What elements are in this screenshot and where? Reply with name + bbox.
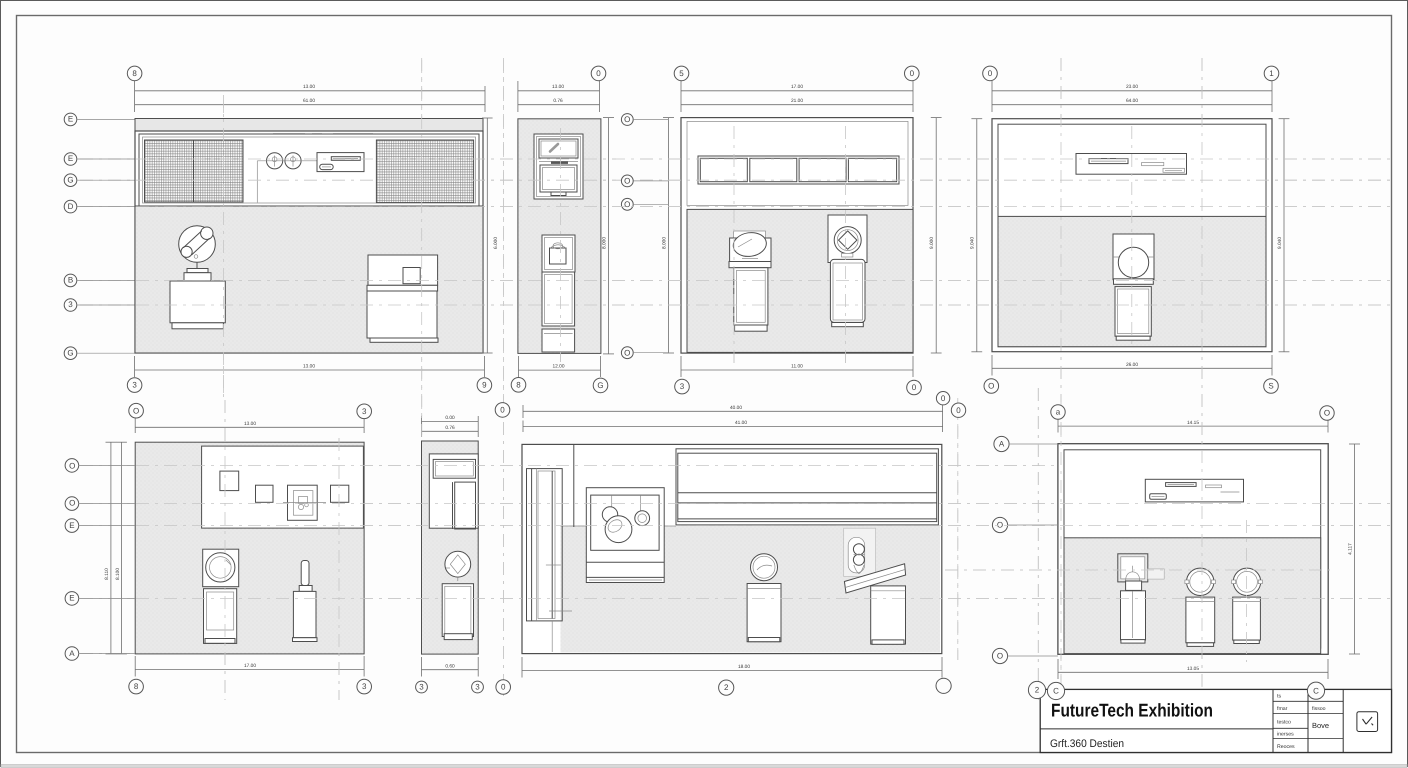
svg-text:0: 0: [500, 406, 505, 415]
svg-text:3: 3: [362, 407, 367, 416]
svg-text:6.000: 6.000: [493, 237, 499, 249]
svg-text:ts: ts: [1277, 694, 1281, 700]
svg-text:G: G: [597, 381, 603, 390]
svg-text:13.00: 13.00: [244, 421, 256, 427]
svg-text:G: G: [67, 175, 73, 184]
svg-text:FutureTech Exhibition: FutureTech Exhibition: [1051, 700, 1213, 721]
svg-text:9.040: 9.040: [970, 237, 976, 249]
svg-text:3: 3: [475, 683, 480, 692]
svg-text:64.00: 64.00: [1126, 98, 1138, 104]
svg-text:O: O: [624, 200, 630, 209]
svg-text:8: 8: [132, 69, 137, 78]
svg-text:O: O: [997, 652, 1003, 661]
svg-text:0: 0: [501, 683, 506, 692]
svg-text:A: A: [999, 440, 1005, 449]
svg-text:O: O: [988, 382, 994, 391]
svg-text:0: 0: [988, 69, 993, 78]
svg-text:12.00: 12.00: [552, 364, 564, 370]
svg-text:0: 0: [596, 69, 601, 78]
svg-text:E: E: [68, 154, 73, 163]
svg-text:61.00: 61.00: [303, 98, 315, 104]
svg-text:2: 2: [724, 683, 729, 692]
svg-text:3: 3: [680, 382, 685, 391]
svg-text:13.00: 13.00: [303, 364, 315, 370]
svg-text:9.040: 9.040: [1277, 237, 1283, 249]
svg-text:13.00: 13.00: [552, 84, 564, 90]
svg-text:5: 5: [679, 69, 684, 78]
svg-text:13.05: 13.05: [1187, 666, 1199, 672]
svg-text:O: O: [133, 406, 139, 415]
svg-text:18.00: 18.00: [738, 664, 750, 670]
svg-text:C: C: [1053, 687, 1059, 696]
svg-text:O: O: [997, 521, 1003, 530]
svg-text:0.60: 0.60: [445, 663, 455, 669]
svg-text:3: 3: [362, 682, 367, 691]
svg-text:0: 0: [912, 383, 917, 392]
svg-text:3: 3: [132, 381, 137, 390]
svg-text:41.00: 41.00: [735, 420, 747, 426]
svg-text:4.117: 4.117: [1348, 543, 1354, 555]
svg-text:E: E: [69, 521, 74, 530]
svg-text:8: 8: [516, 380, 521, 389]
svg-text:0: 0: [941, 394, 946, 403]
svg-text:17.00: 17.00: [244, 663, 256, 669]
svg-text:0.76: 0.76: [445, 425, 455, 431]
svg-text:A: A: [69, 649, 75, 658]
svg-text:G: G: [67, 348, 73, 357]
svg-text:8.110: 8.110: [104, 568, 110, 580]
svg-text:0: 0: [956, 406, 961, 415]
svg-text:8.100: 8.100: [115, 568, 121, 580]
svg-text:E: E: [68, 115, 73, 124]
svg-text:Grft.360 Destien: Grft.360 Destien: [1050, 738, 1124, 750]
svg-text:inerses: inerses: [1277, 732, 1294, 738]
svg-text:14.15: 14.15: [1187, 420, 1199, 426]
svg-text:11.00: 11.00: [791, 364, 803, 370]
svg-text:8: 8: [134, 682, 139, 691]
svg-text:17.00: 17.00: [791, 84, 803, 90]
svg-text:1: 1: [1269, 69, 1274, 78]
svg-text:13.00: 13.00: [303, 84, 315, 90]
svg-text:2: 2: [1035, 686, 1040, 695]
svg-text:9: 9: [482, 381, 487, 390]
svg-text:O: O: [1324, 409, 1330, 418]
svg-text:8.000: 8.000: [602, 237, 608, 249]
svg-text:O: O: [69, 498, 75, 507]
svg-text:Bove: Bove: [1312, 721, 1329, 730]
svg-text:3: 3: [68, 300, 73, 309]
svg-text:D: D: [68, 202, 74, 211]
svg-text:O: O: [69, 461, 75, 470]
svg-text:9.000: 9.000: [929, 237, 935, 249]
svg-text:C: C: [1313, 686, 1319, 695]
svg-text:a: a: [1056, 408, 1061, 417]
svg-text:26.00: 26.00: [1126, 362, 1138, 368]
svg-text:0.76: 0.76: [553, 98, 563, 104]
svg-text:O: O: [624, 177, 630, 186]
svg-text:0.00: 0.00: [445, 415, 455, 421]
svg-text:O: O: [624, 115, 630, 124]
svg-text:S: S: [1268, 382, 1273, 391]
svg-text:0: 0: [910, 69, 915, 78]
svg-text:8.000: 8.000: [662, 237, 668, 249]
svg-text:21.00: 21.00: [791, 98, 803, 104]
svg-text:E: E: [69, 594, 74, 603]
svg-text:23.00: 23.00: [1126, 84, 1138, 90]
svg-text:3: 3: [419, 683, 424, 692]
svg-text:Reoces: Reoces: [1277, 744, 1295, 750]
svg-text:B: B: [68, 276, 73, 285]
svg-text:fissoo: fissoo: [1312, 706, 1326, 712]
svg-text:O: O: [624, 348, 630, 357]
svg-text:fmar: fmar: [1277, 706, 1288, 712]
svg-text:40.00: 40.00: [730, 405, 742, 411]
svg-text:testco: testco: [1277, 720, 1291, 726]
